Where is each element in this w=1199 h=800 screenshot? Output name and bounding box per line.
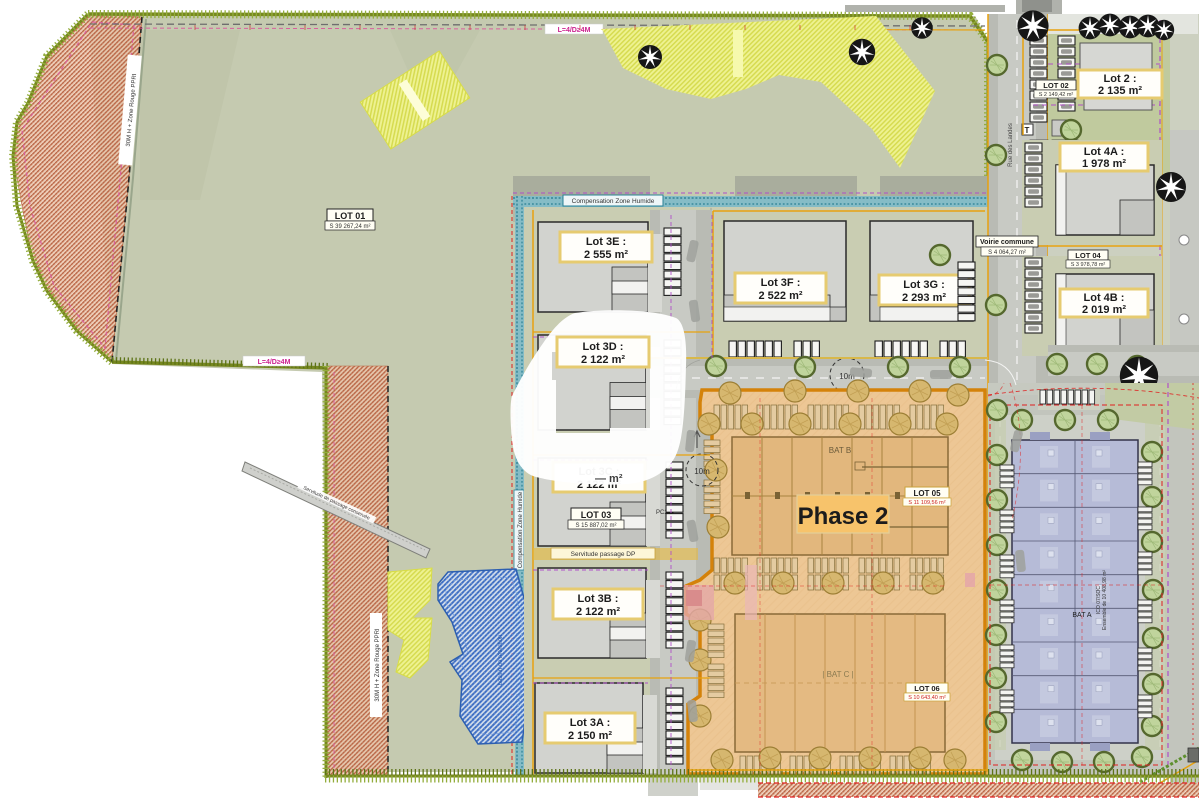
- svg-text:Rue des Landes: Rue des Landes: [1008, 123, 1014, 167]
- svg-text:Lot 3D :: Lot 3D :: [583, 341, 624, 353]
- svg-text:30M H + Zone Rouge PPRI: 30M H + Zone Rouge PPRI: [375, 628, 381, 702]
- svg-text:Compensation Zone Humide: Compensation Zone Humide: [518, 491, 524, 568]
- svg-text:S 2 149,42 m²: S 2 149,42 m²: [1039, 92, 1074, 98]
- svg-text:1 978 m²: 1 978 m²: [1082, 158, 1126, 170]
- svg-text:Lot 3G :: Lot 3G :: [903, 279, 945, 291]
- svg-text:BAT B: BAT B: [829, 446, 851, 455]
- svg-text:S 11 109,56 m²: S 11 109,56 m²: [908, 500, 945, 506]
- svg-text:Ensemble de 10 408,98 m²: Ensemble de 10 408,98 m²: [1102, 570, 1108, 630]
- svg-text:2 135 m²: 2 135 m²: [1098, 85, 1142, 97]
- svg-text:LOT 01: LOT 01: [335, 211, 366, 221]
- svg-text:2 019 m²: 2 019 m²: [1082, 304, 1126, 316]
- svg-text:2 122 m²: 2 122 m²: [576, 606, 620, 618]
- svg-text:Servitude passage DP: Servitude passage DP: [571, 551, 636, 558]
- svg-text:Lot 3A :: Lot 3A :: [570, 717, 611, 729]
- svg-text:Lot 4A :: Lot 4A :: [1084, 146, 1125, 158]
- svg-text:2 150 m²: 2 150 m²: [568, 730, 612, 742]
- svg-text:2 555 m²: 2 555 m²: [584, 249, 628, 261]
- svg-text:LOT 02: LOT 02: [1043, 81, 1068, 90]
- svg-text:LOT 05: LOT 05: [913, 489, 941, 498]
- svg-text:— m²: — m²: [595, 473, 623, 485]
- svg-text:Lot 3B :: Lot 3B :: [578, 593, 619, 605]
- svg-text:2 522 m²: 2 522 m²: [758, 290, 802, 302]
- svg-text:2 293 m²: 2 293 m²: [902, 292, 946, 304]
- svg-text:Phase 2: Phase 2: [798, 503, 889, 530]
- svg-text:LOT 06: LOT 06: [914, 684, 939, 693]
- svg-text:bassin de rétention: bassin de rétention: [498, 635, 504, 686]
- svg-text:Lot 4B :: Lot 4B :: [1084, 292, 1125, 304]
- svg-text:L=4/D≥4M: L=4/D≥4M: [258, 359, 291, 366]
- svg-text:S 10 643,40 m²: S 10 643,40 m²: [908, 695, 946, 701]
- svg-text:Lot 3F :: Lot 3F :: [761, 277, 801, 289]
- svg-text:Compensation Zone Humide: Compensation Zone Humide: [572, 198, 655, 205]
- svg-text:S 15 887,02 m²: S 15 887,02 m²: [575, 523, 616, 529]
- svg-text:LOT 04: LOT 04: [1075, 251, 1101, 260]
- svg-text:Lot 2 :: Lot 2 :: [1104, 73, 1137, 85]
- svg-text:S 3 978,78 m²: S 3 978,78 m²: [1071, 262, 1106, 268]
- svg-text:Lot 3E :: Lot 3E :: [586, 236, 626, 248]
- svg-text:T: T: [1025, 126, 1030, 135]
- svg-text:S 39 267,24 m²: S 39 267,24 m²: [329, 224, 370, 230]
- svg-text:S 4 064,27 m²: S 4 064,27 m²: [988, 250, 1026, 256]
- svg-text:Voirie commune: Voirie commune: [980, 239, 1034, 246]
- svg-text:10m: 10m: [694, 467, 710, 476]
- svg-text:L=4/D≥4M: L=4/D≥4M: [558, 27, 591, 34]
- svg-text:LOT 03: LOT 03: [581, 510, 612, 520]
- svg-text:2 122 m²: 2 122 m²: [581, 354, 625, 366]
- svg-text:| BAT C |: | BAT C |: [822, 670, 853, 679]
